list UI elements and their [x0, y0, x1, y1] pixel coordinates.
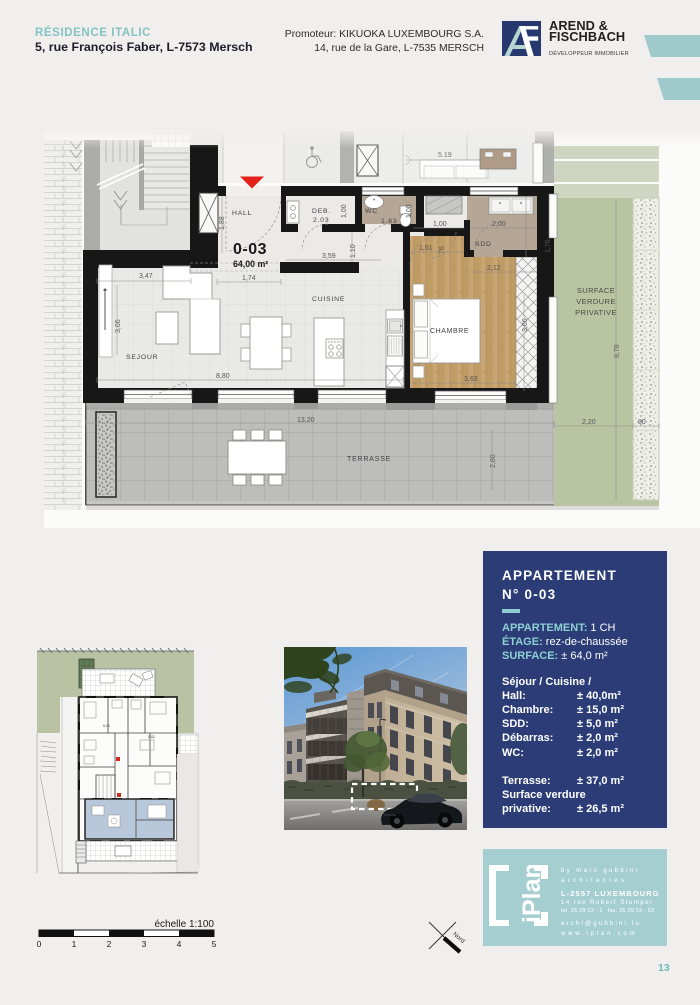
svg-text:3,47: 3,47	[139, 273, 153, 280]
svg-text:3,59: 3,59	[322, 253, 336, 260]
svg-text:SDD: SDD	[475, 241, 492, 248]
svg-text:1,74: 1,74	[242, 275, 256, 282]
svg-text:5.19: 5.19	[438, 152, 452, 159]
svg-text:1,00: 1,00	[433, 221, 447, 228]
svg-text:1,51: 1,51	[419, 245, 433, 252]
svg-text:1,88: 1,88	[219, 216, 226, 230]
svg-text:CUISINE: CUISINE	[312, 296, 345, 303]
svg-text:8,80: 8,80	[216, 373, 230, 380]
svg-text:3,63: 3,63	[464, 376, 478, 383]
svg-text:CHAMBRE: CHAMBRE	[430, 328, 469, 335]
svg-text:1,10: 1,10	[350, 244, 357, 258]
svg-text:1,76: 1,76	[545, 239, 552, 253]
svg-text:0-03: 0-03	[233, 241, 267, 258]
svg-text:76: 76	[439, 246, 446, 254]
svg-text:4: 4	[177, 939, 182, 949]
svg-text:VERDURE: VERDURE	[576, 297, 615, 306]
svg-text:3: 3	[142, 939, 147, 949]
svg-text:iPlan: iPlan	[518, 865, 546, 923]
svg-text:2,20: 2,20	[582, 419, 596, 426]
svg-text:2,12: 2,12	[487, 265, 501, 272]
svg-text:80: 80	[638, 419, 646, 426]
svg-text:TERRASSE: TERRASSE	[347, 456, 391, 463]
svg-text:1,00: 1,00	[406, 204, 413, 218]
svg-text:3,66: 3,66	[115, 319, 122, 333]
svg-text:2: 2	[107, 939, 112, 949]
svg-text:HALL: HALL	[232, 210, 252, 217]
svg-text:2,00: 2,00	[492, 221, 506, 228]
svg-text:échelle 1:100: échelle 1:100	[155, 919, 215, 930]
svg-text:WC: WC	[365, 208, 378, 215]
svg-text:0: 0	[37, 939, 42, 949]
svg-text:2,80: 2,80	[490, 454, 497, 468]
svg-text:64,00 m²: 64,00 m²	[233, 259, 268, 269]
svg-text:2.03: 2.03	[313, 217, 329, 224]
svg-text:DEB.: DEB.	[312, 208, 331, 215]
svg-text:1,63: 1,63	[381, 218, 397, 225]
svg-text:0-01: 0-01	[103, 724, 110, 728]
svg-text:1,00: 1,00	[341, 204, 348, 218]
svg-text:SURFACE: SURFACE	[577, 286, 615, 295]
svg-text:5: 5	[212, 939, 217, 949]
svg-text:PRIVATIVE: PRIVATIVE	[575, 308, 617, 317]
svg-text:Nord: Nord	[451, 931, 466, 946]
svg-text:3,66: 3,66	[522, 318, 529, 332]
svg-text:8,78: 8,78	[614, 344, 621, 358]
svg-text:1: 1	[72, 939, 77, 949]
svg-text:SEJOUR: SEJOUR	[126, 354, 158, 361]
svg-text:0-02: 0-02	[148, 735, 155, 739]
